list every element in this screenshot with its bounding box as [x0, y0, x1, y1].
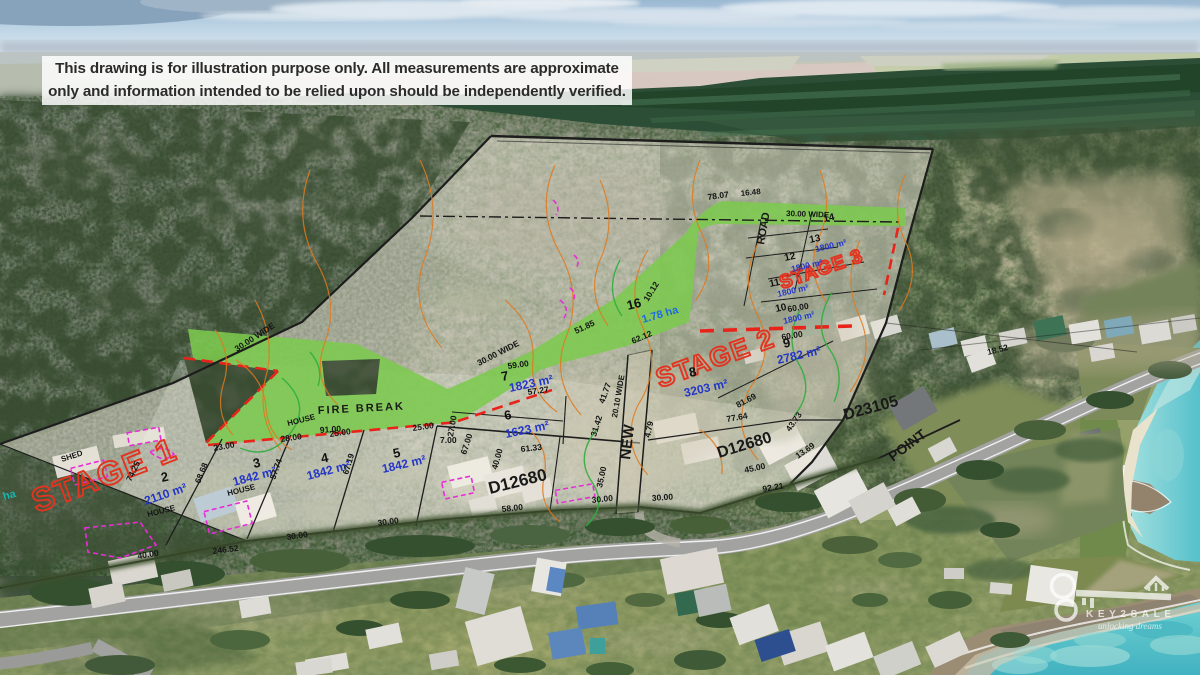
svg-text:30.00: 30.00 [651, 492, 673, 503]
svg-text:unlocking dreams: unlocking dreams [1098, 621, 1162, 631]
svg-text:KEY2SALE: KEY2SALE [1086, 609, 1176, 620]
svg-text:30.00 WIDE: 30.00 WIDE [786, 209, 830, 220]
